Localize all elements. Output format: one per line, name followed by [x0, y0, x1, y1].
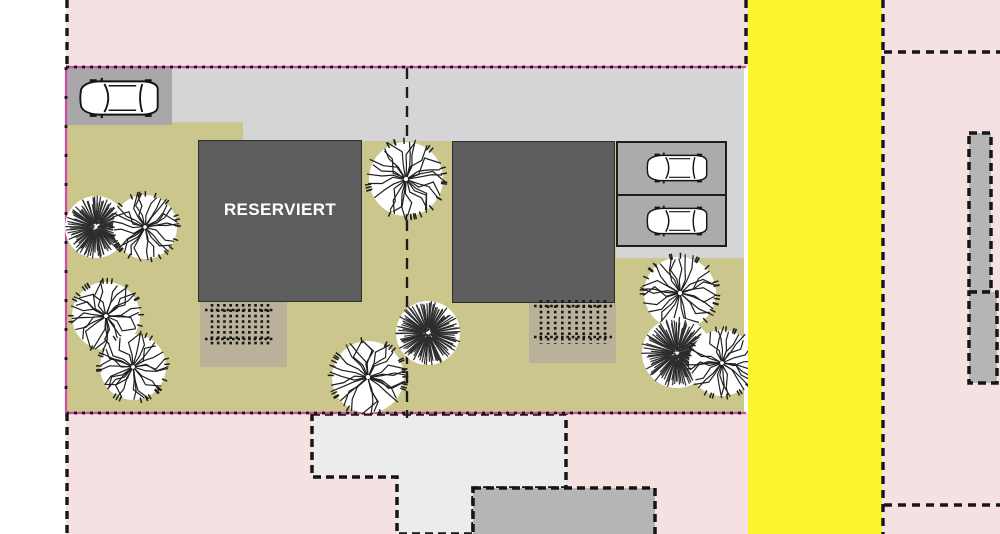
car-icon: [647, 153, 706, 184]
neighbor-building-east-lower: [969, 292, 997, 383]
railing-1: [534, 300, 612, 344]
railing-0: [205, 304, 275, 346]
broadleaf-tree-icon: [365, 138, 447, 221]
plan-overlay: [0, 0, 1000, 534]
car-icon: [80, 78, 157, 118]
neighbor-building-east-upper: [969, 133, 991, 292]
site-plan: RESERVIERT: [0, 0, 1000, 534]
broadleaf-tree-icon: [109, 191, 181, 262]
neighbor-building-south-mid: [473, 488, 655, 534]
conifer-tree-icon: [395, 301, 460, 365]
broadleaf-tree-icon: [328, 337, 409, 415]
car-icon: [647, 206, 706, 237]
